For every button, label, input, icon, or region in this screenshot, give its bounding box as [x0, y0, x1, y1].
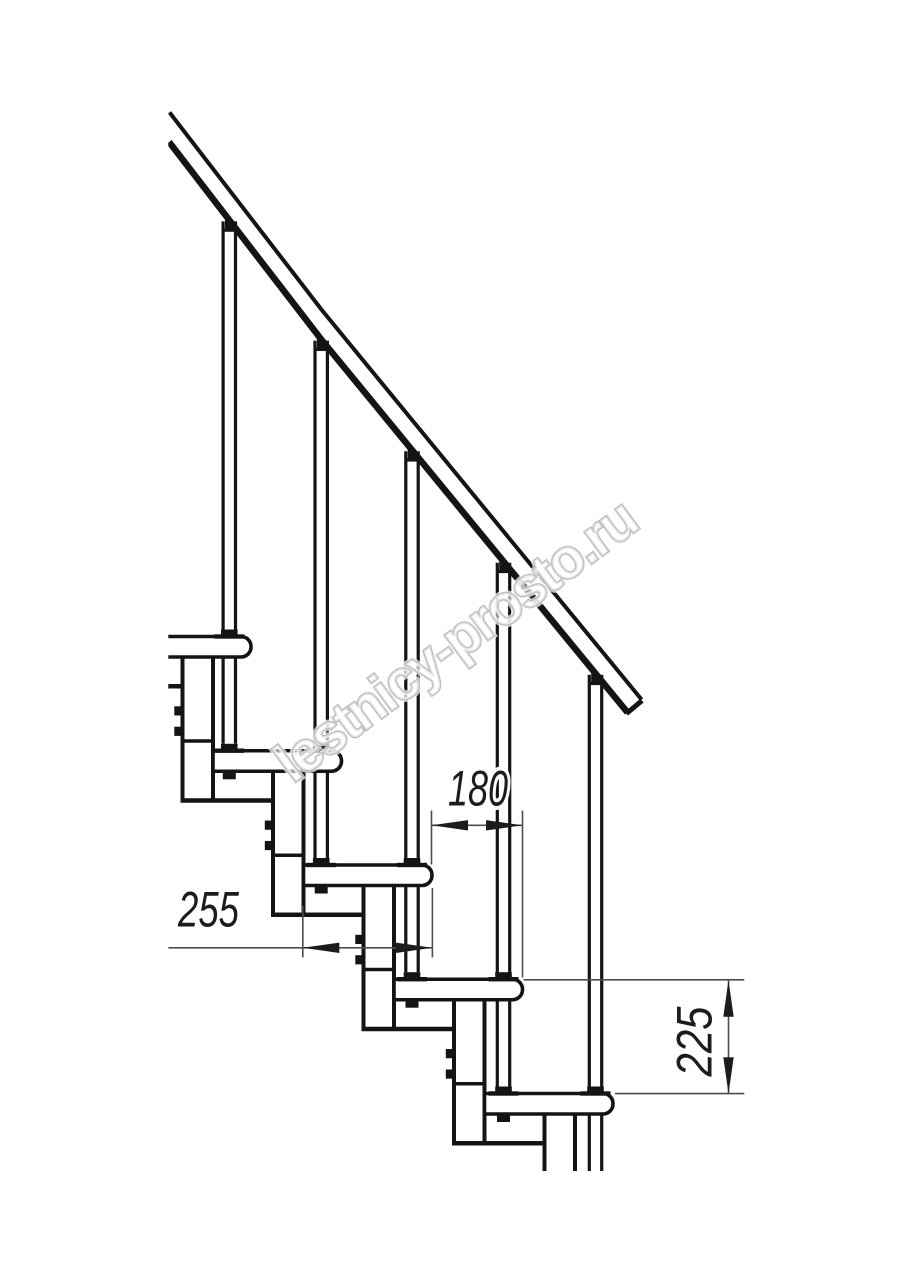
svg-text:225: 225 — [667, 1006, 723, 1077]
svg-text:180: 180 — [448, 761, 508, 817]
svg-text:255: 255 — [177, 882, 239, 938]
